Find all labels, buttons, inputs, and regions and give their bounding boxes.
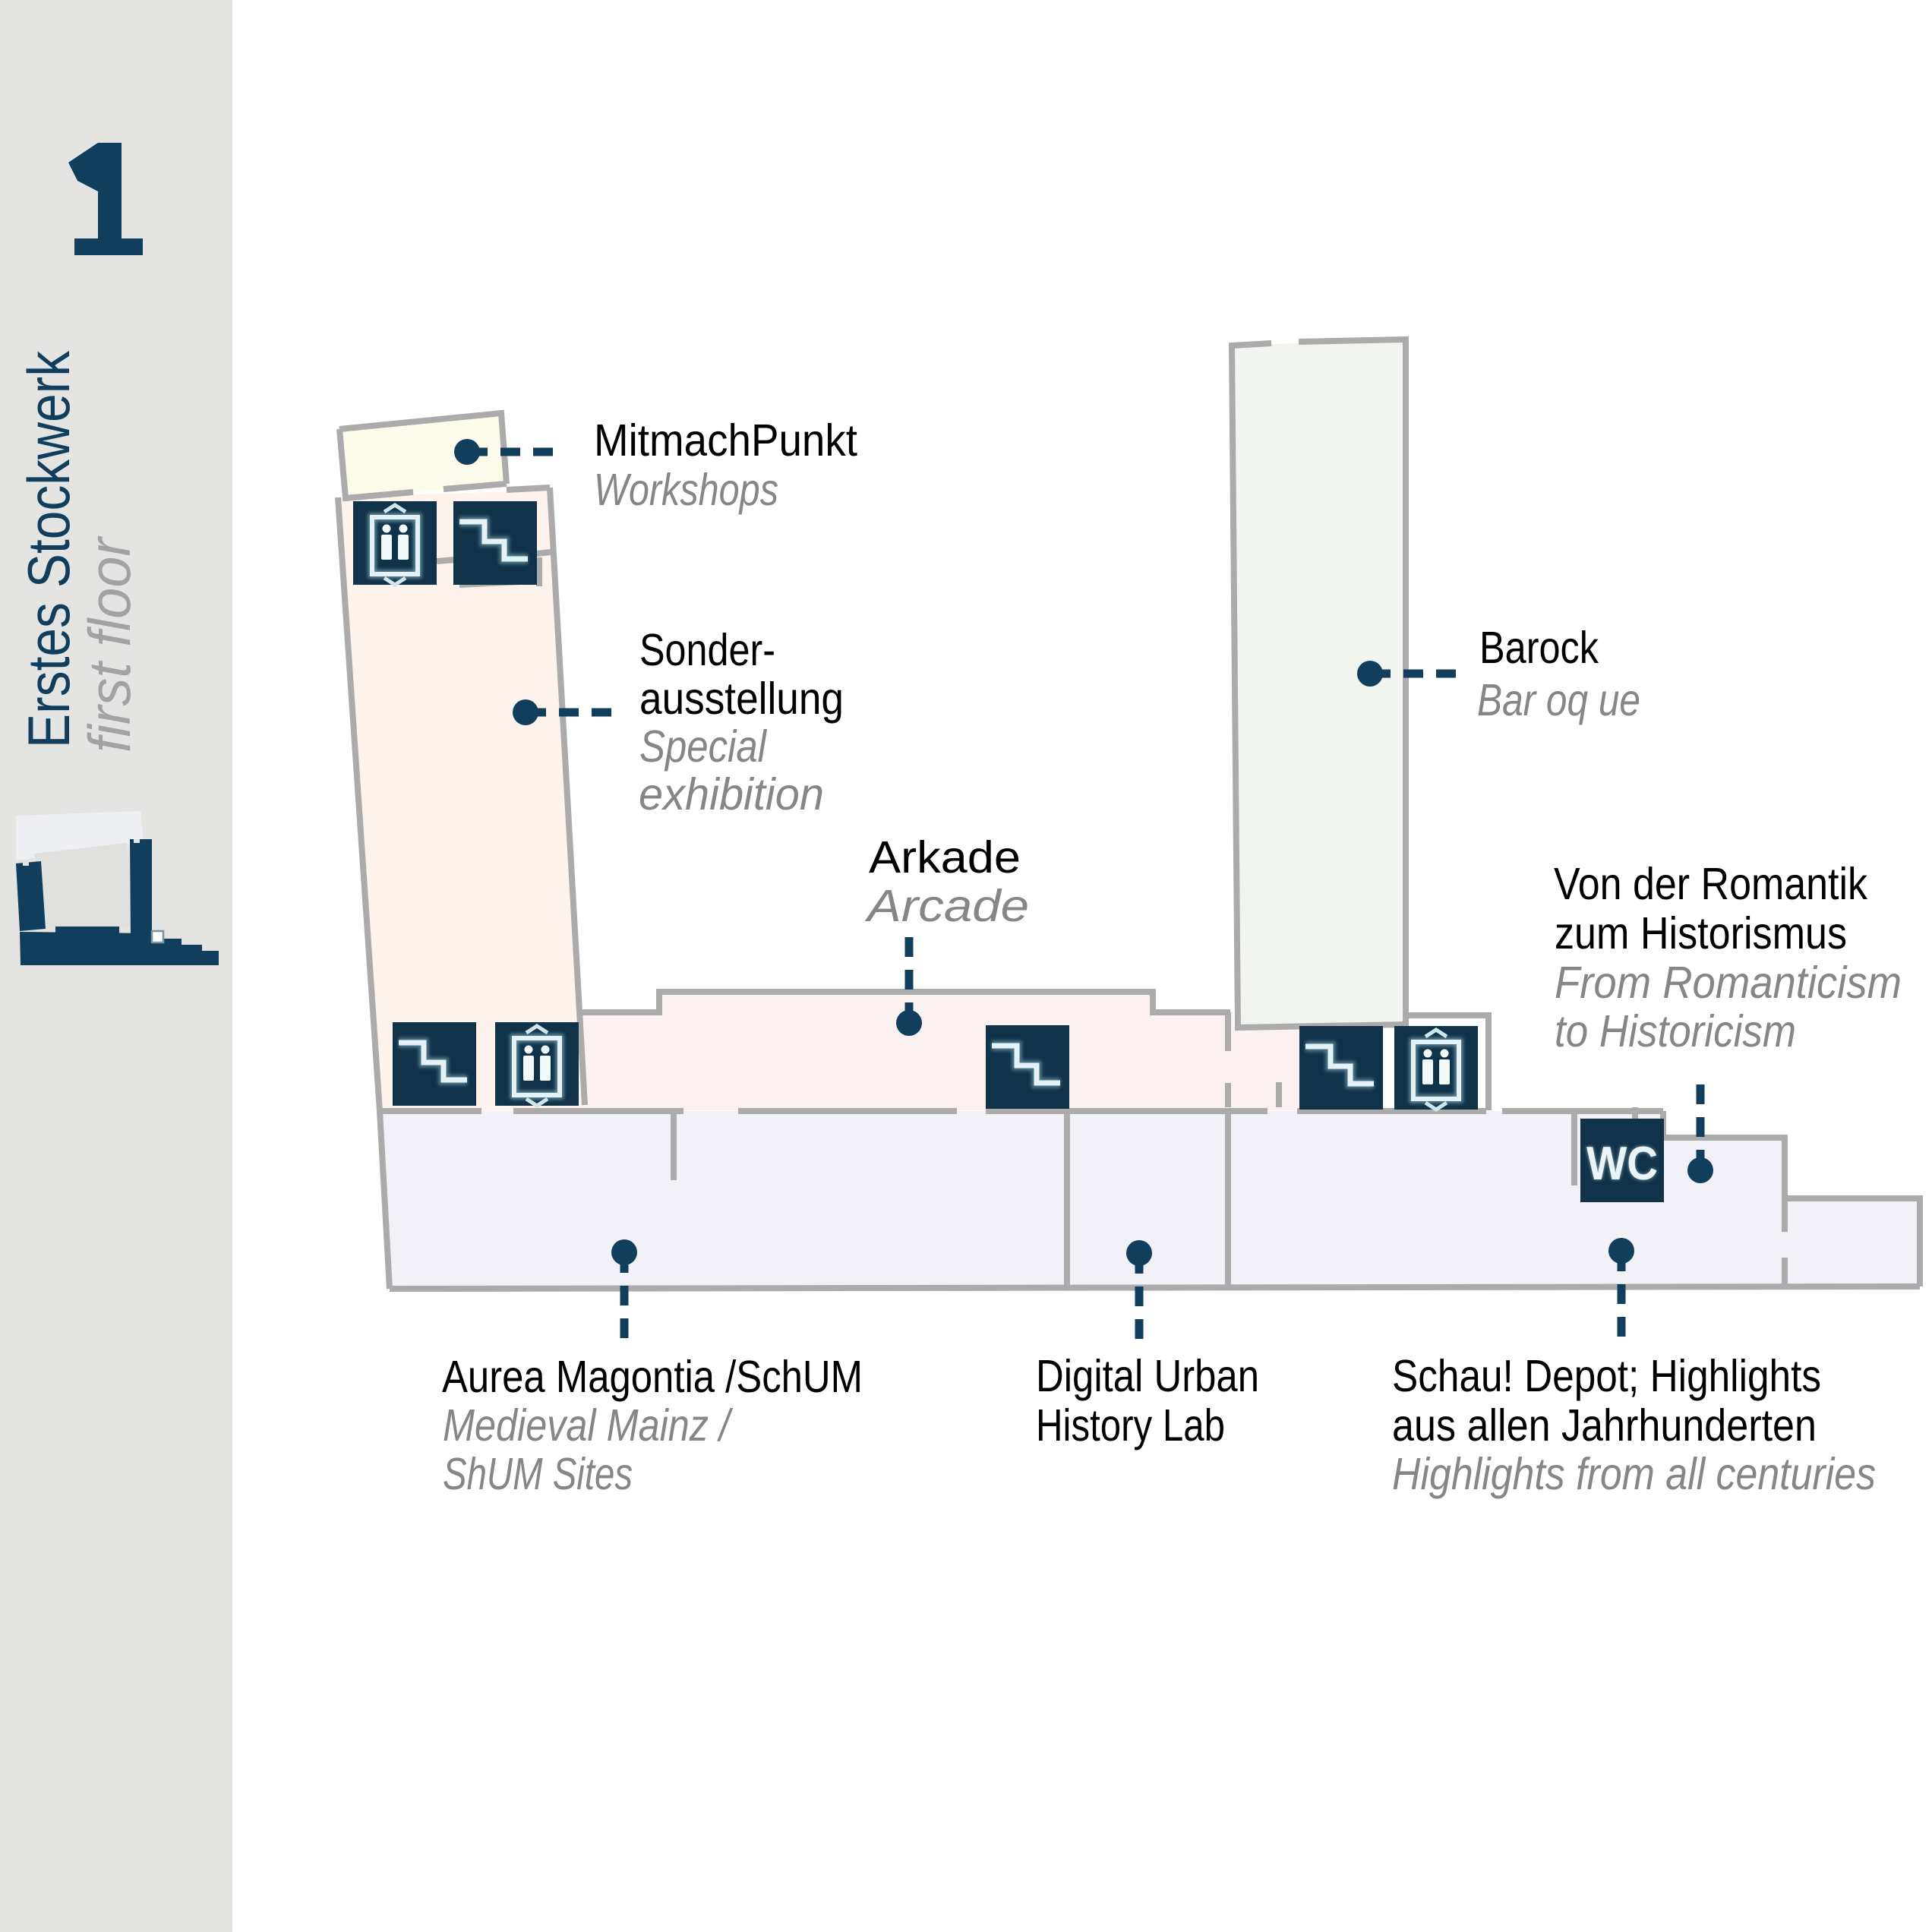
svg-text:History Lab: History Lab bbox=[1036, 1400, 1225, 1451]
svg-text:zum Historismus: zum Historismus bbox=[1555, 908, 1847, 958]
svg-text:Workshops: Workshops bbox=[594, 465, 778, 515]
svg-text:From Romanticism: From Romanticism bbox=[1555, 958, 1902, 1008]
svg-text:Arkade: Arkade bbox=[869, 832, 1021, 882]
svg-text:Erstes Stockwerk: Erstes Stockwerk bbox=[15, 350, 82, 748]
svg-text:Barock: Barock bbox=[1479, 623, 1599, 673]
svg-text:Schau! Depot; Highlights: Schau! Depot; Highlights bbox=[1392, 1351, 1821, 1401]
svg-text:Highlights from all centuries: Highlights from all centuries bbox=[1392, 1449, 1876, 1499]
svg-text:Aurea Magontia /SchUM: Aurea Magontia /SchUM bbox=[442, 1352, 863, 1402]
svg-text:Arcade: Arcade bbox=[865, 881, 1029, 931]
svg-text:Bar oq ue: Bar oq ue bbox=[1477, 675, 1640, 725]
svg-text:Sonder-: Sonder- bbox=[639, 625, 775, 675]
svg-text:MitmachPunkt: MitmachPunkt bbox=[594, 415, 857, 466]
svg-text:ShUM Sites: ShUM Sites bbox=[443, 1449, 633, 1499]
svg-text:first floor: first floor bbox=[76, 535, 143, 753]
svg-text:ausstellung: ausstellung bbox=[639, 674, 844, 724]
svg-text:Von der Romantik: Von der Romantik bbox=[1554, 859, 1867, 909]
svg-text:exhibition: exhibition bbox=[639, 769, 824, 819]
svg-text:aus allen Jahrhunderten: aus allen Jahrhunderten bbox=[1392, 1400, 1817, 1451]
svg-text:Special: Special bbox=[639, 721, 768, 772]
svg-text:Digital Urban: Digital Urban bbox=[1036, 1351, 1259, 1401]
svg-text:to Historicism: to Historicism bbox=[1555, 1006, 1796, 1056]
svg-text:Medieval Mainz /: Medieval Mainz / bbox=[443, 1400, 734, 1451]
